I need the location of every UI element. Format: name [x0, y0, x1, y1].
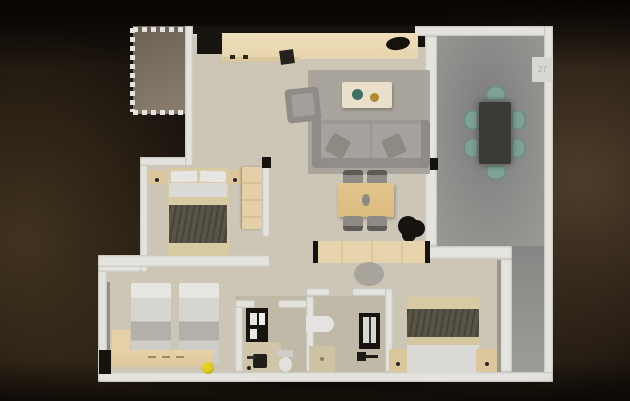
- wall-unit-label: 27: [532, 57, 553, 82]
- bed-pillow: [200, 171, 226, 183]
- terrace-chair: [464, 110, 478, 130]
- floor-balcony: [133, 26, 193, 114]
- bed-pillow: [171, 171, 197, 183]
- terrace-chair: [464, 138, 478, 158]
- terrace-dining-table: [479, 102, 511, 164]
- terrace-chair: [486, 86, 506, 100]
- bed3-sheet: [407, 345, 479, 373]
- balcony-dashed-edge: [133, 27, 191, 32]
- hall-stool: [354, 262, 384, 286]
- nightstand: [148, 170, 165, 184]
- shower-pane: [250, 329, 257, 339]
- kitchen-knob-icon: [243, 55, 248, 59]
- floor-terrace-strip: [512, 246, 544, 372]
- toilet-tank: [278, 350, 293, 357]
- master-wardrobe: [242, 167, 262, 229]
- dining-table-centerpiece-icon: [362, 194, 370, 206]
- coffee-table: [342, 82, 392, 108]
- hall-closet-endcap: [425, 241, 430, 263]
- floor-plan-render: 27: [0, 0, 630, 401]
- bath1-drain-icon: [247, 366, 251, 370]
- balcony-dashed-edge: [133, 110, 191, 115]
- bath2-basin: [306, 316, 334, 332]
- tray-drain-icon: [320, 357, 324, 361]
- plant-icon: [402, 228, 416, 242]
- shower-pane: [250, 313, 257, 325]
- twin-side-cube: [112, 330, 130, 350]
- sofa-armrest: [421, 120, 430, 168]
- wall-left-upper: [185, 26, 193, 166]
- kitchen-appliance-block: [197, 32, 223, 54]
- wall-hall-terrace: [418, 246, 512, 259]
- dining-chair: [343, 216, 363, 231]
- wall-master-bottom: [98, 255, 270, 267]
- wall-cap-master: [262, 157, 271, 168]
- wall-bath2-top-left: [306, 288, 330, 296]
- master-bed-sheet: [169, 183, 227, 197]
- wall-twin-right: [235, 300, 243, 372]
- wall-master-right: [262, 157, 270, 237]
- bench-marks: [148, 356, 188, 358]
- wall-terrace-strip: [500, 259, 512, 372]
- bed3-blanket: [407, 309, 479, 337]
- balcony-dashed-edge: [130, 28, 135, 112]
- bath1-sink-icon: [253, 354, 267, 368]
- nightstand: [476, 349, 497, 372]
- toilet-bowl: [279, 357, 292, 372]
- bed3-wall-shadow: [497, 260, 501, 372]
- master-bed-blanket: [169, 205, 227, 243]
- bath2-faucet-icon: [357, 352, 366, 361]
- dining-chair: [367, 216, 387, 231]
- decor-plate-icon: [352, 89, 363, 100]
- terrace-wall-unit: 27: [532, 57, 553, 82]
- bath1-faucet-icon: [247, 356, 255, 359]
- twin-wall-shadow: [107, 282, 110, 352]
- yellow-ball-icon: [202, 362, 214, 374]
- twin-bench: [112, 350, 214, 367]
- nightstand: [389, 349, 407, 372]
- shower-pane: [259, 313, 265, 325]
- kitchen-knob-icon: [230, 55, 235, 59]
- nightstand: [228, 170, 242, 184]
- twin-dark-cabinet: [99, 350, 111, 374]
- hall-closet: [313, 241, 430, 263]
- decor-bowl-icon: [370, 93, 379, 102]
- sofa-back: [321, 158, 421, 168]
- bath2-faucet-arm-icon: [366, 355, 378, 358]
- sofa-armrest: [312, 120, 321, 168]
- shower-door-line: [369, 317, 371, 343]
- hall-closet-endcap: [313, 241, 318, 263]
- wall-bath1-top-left: [235, 300, 255, 308]
- armchair-seat: [291, 93, 315, 117]
- wall-bottom: [98, 372, 553, 382]
- tv-icon: [279, 49, 295, 65]
